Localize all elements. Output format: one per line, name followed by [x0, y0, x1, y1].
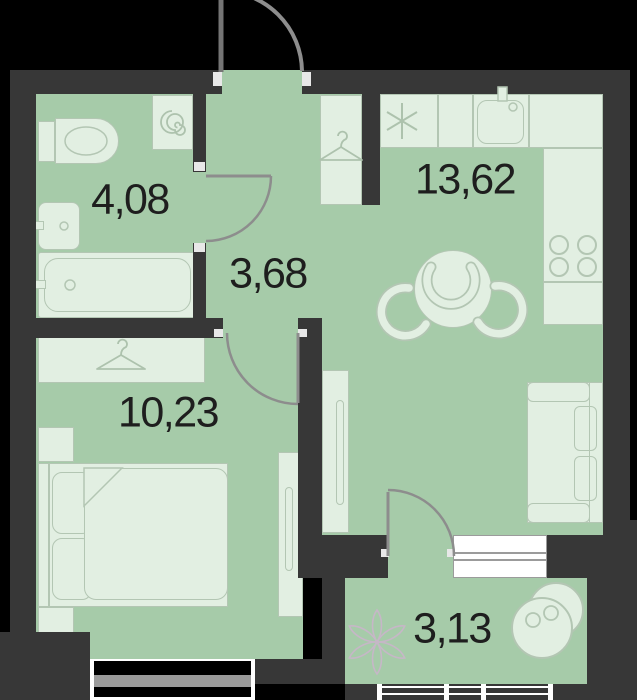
wall-top-right — [302, 70, 630, 94]
wall-left — [10, 70, 36, 660]
balcony-glazing-mullion — [377, 684, 382, 700]
door-jamb — [302, 72, 311, 86]
floor-plan: 4,08 3,68 13,62 10,23 3,13 — [0, 0, 637, 700]
entrance-door-arc — [221, 0, 302, 71]
window-sill-band — [94, 675, 251, 687]
bed-headboard-line — [48, 464, 50, 606]
wall-hall-kitchen — [362, 94, 380, 205]
balcony-doorway-floor — [388, 535, 453, 578]
area-label-balcony: 3,13 — [413, 608, 491, 651]
counter-divider — [544, 281, 602, 283]
dining-table — [414, 250, 492, 328]
hallway-wardrobe — [320, 95, 362, 205]
wall-top-left — [10, 70, 222, 94]
wall-corner-bottom-left — [0, 632, 90, 700]
wall-balcony-left — [322, 578, 345, 684]
balcony-glazing-mullion — [444, 684, 449, 700]
tv-screen-bedroom — [285, 487, 293, 571]
bedroom-window — [90, 659, 255, 700]
window-glass-line — [454, 559, 546, 561]
wall-living-bottom-right — [547, 535, 605, 578]
bathroom-sink — [38, 202, 80, 250]
nightstand — [38, 427, 74, 462]
bathtub-inner — [44, 258, 191, 312]
door-jamb — [194, 243, 205, 252]
wall-bathroom-bottom — [10, 318, 223, 338]
door-jamb — [194, 162, 205, 171]
kitchen-sink — [477, 100, 524, 144]
door-jamb — [381, 549, 389, 557]
wall-partition-central — [298, 318, 322, 578]
wall-balcony-right — [587, 578, 637, 700]
counter-divider — [472, 95, 474, 147]
washing-machine — [152, 95, 193, 150]
wall-bedroom-bottom — [255, 659, 322, 684]
area-label-bedroom: 10,23 — [118, 392, 218, 435]
balcony-glazing-bar — [377, 686, 553, 688]
area-label-kitchen-living: 13,62 — [415, 159, 515, 202]
toilet-bowl — [55, 118, 119, 164]
balcony-glazing-bar — [377, 693, 553, 695]
wall-living-bottom-left — [322, 535, 388, 578]
door-jamb — [213, 72, 222, 86]
door-jamb — [214, 329, 223, 337]
sofa-armrest-top — [527, 382, 590, 402]
sofa-cushion — [574, 406, 597, 451]
balcony-glazing-mullion — [481, 684, 486, 700]
toilet-tank — [38, 121, 55, 162]
counter-divider — [528, 95, 530, 147]
living-room-window — [453, 535, 547, 578]
area-label-hallway: 3,68 — [229, 253, 307, 296]
bathroom-doorway-floor — [193, 172, 206, 243]
counter-divider — [437, 95, 439, 147]
kitchen-counter-right — [543, 148, 603, 325]
area-label-bathroom: 4,08 — [91, 179, 169, 222]
balcony-glazing-mullion — [548, 684, 553, 700]
wall-right — [603, 70, 630, 530]
wall-bathroom-right-upper — [193, 94, 206, 172]
tv-screen-living — [336, 400, 344, 505]
bedroom-wardrobe — [38, 337, 205, 383]
door-jamb — [298, 329, 307, 337]
window-glass-line — [454, 552, 546, 554]
sofa-backrest — [589, 382, 603, 523]
entrance-doorway-floor — [222, 70, 302, 94]
blanket — [84, 468, 228, 600]
sofa-armrest-bottom — [527, 503, 590, 523]
sofa-cushion — [574, 456, 597, 501]
